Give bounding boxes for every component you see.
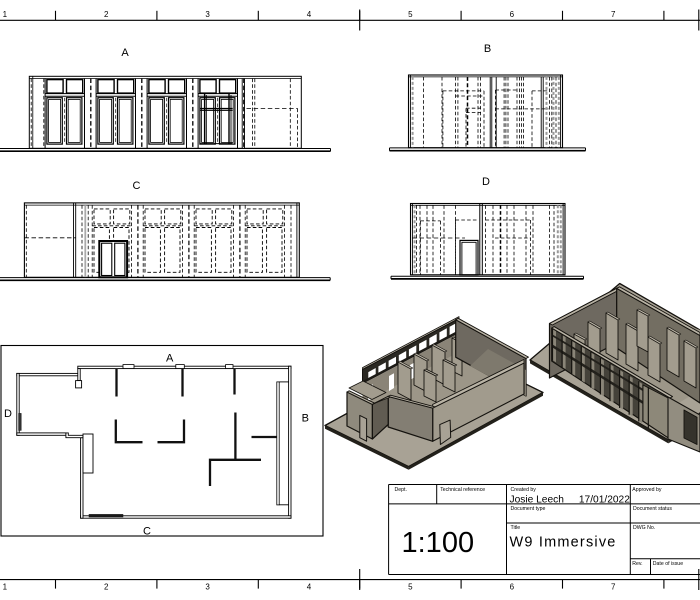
svg-text:D: D	[4, 408, 12, 420]
svg-text:3: 3	[205, 583, 210, 592]
svg-text:Rev.: Rev.	[632, 561, 642, 567]
svg-text:1: 1	[3, 10, 8, 19]
svg-text:5: 5	[408, 583, 413, 592]
svg-text:2: 2	[104, 583, 109, 592]
svg-text:4: 4	[307, 583, 312, 592]
svg-text:Date of issue: Date of issue	[653, 561, 683, 567]
svg-text:C: C	[143, 526, 151, 538]
svg-text:4: 4	[307, 10, 312, 19]
svg-text:Josie Leech: Josie Leech	[510, 494, 564, 505]
svg-text:Technical reference: Technical reference	[440, 487, 485, 493]
svg-text:6: 6	[510, 10, 515, 19]
svg-text:Document status: Document status	[633, 506, 672, 512]
svg-text:A: A	[166, 353, 174, 365]
svg-text:3: 3	[205, 10, 210, 19]
svg-text:Created by: Created by	[511, 487, 537, 493]
svg-text:7: 7	[611, 10, 616, 19]
svg-text:Dept.: Dept.	[395, 487, 407, 493]
svg-text:1: 1	[3, 583, 8, 592]
svg-text:Document type: Document type	[511, 506, 546, 512]
svg-text:7: 7	[611, 583, 616, 592]
svg-text:Approved by: Approved by	[632, 487, 662, 493]
svg-text:D: D	[482, 176, 490, 188]
svg-text:W9 Immersive: W9 Immersive	[510, 535, 617, 551]
svg-text:2: 2	[104, 10, 109, 19]
svg-text:A: A	[121, 47, 129, 59]
svg-text:C: C	[133, 180, 141, 192]
svg-text:1:100: 1:100	[402, 527, 475, 559]
svg-text:B: B	[484, 43, 491, 55]
svg-text:DWG No.: DWG No.	[633, 525, 655, 531]
svg-text:17/01/2022: 17/01/2022	[579, 494, 630, 505]
svg-text:6: 6	[510, 583, 515, 592]
svg-text:5: 5	[408, 10, 413, 19]
svg-text:B: B	[302, 413, 309, 425]
svg-text:Title: Title	[511, 525, 521, 531]
